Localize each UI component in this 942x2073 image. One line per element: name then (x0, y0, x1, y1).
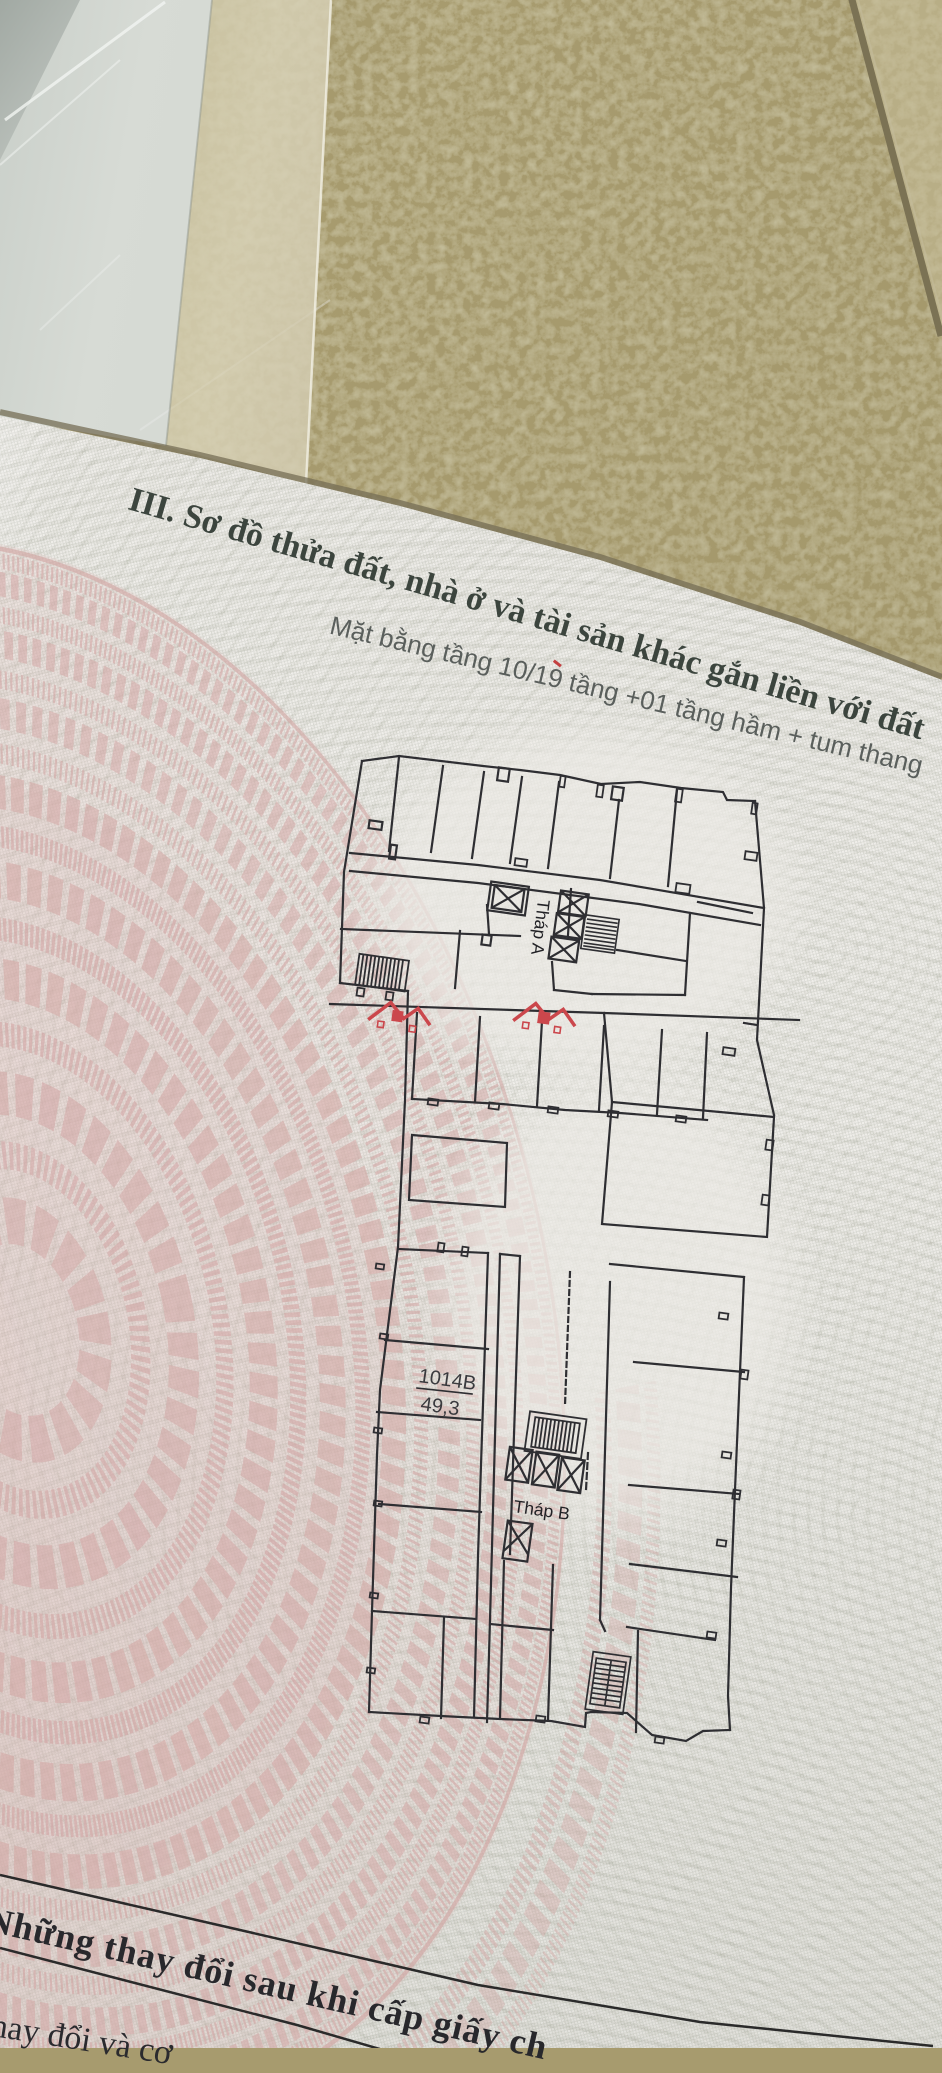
svg-text:Tháp B: Tháp B (512, 1496, 571, 1524)
svg-text:1014B: 1014B (417, 1365, 477, 1395)
